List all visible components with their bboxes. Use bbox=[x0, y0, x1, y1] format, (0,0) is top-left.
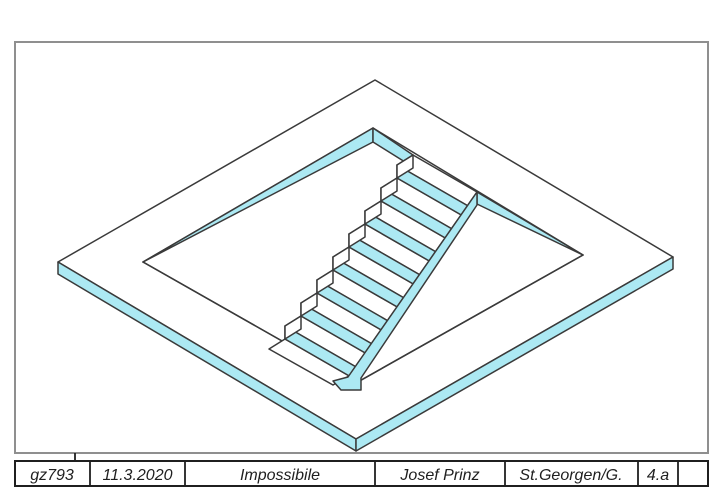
titleblock-class: 4.a bbox=[647, 467, 669, 484]
titleblock-date: 11.3.2020 bbox=[103, 467, 173, 484]
titleblock-place: St.Georgen/G. bbox=[519, 467, 622, 484]
titleblock-name: Josef Prinz bbox=[399, 467, 479, 484]
titleblock-code: gz793 bbox=[30, 467, 74, 484]
drawing-canvas: gz793 11.3.2020 Impossibile Josef Prinz … bbox=[0, 0, 720, 500]
titleblock-title: Impossibile bbox=[240, 467, 320, 484]
